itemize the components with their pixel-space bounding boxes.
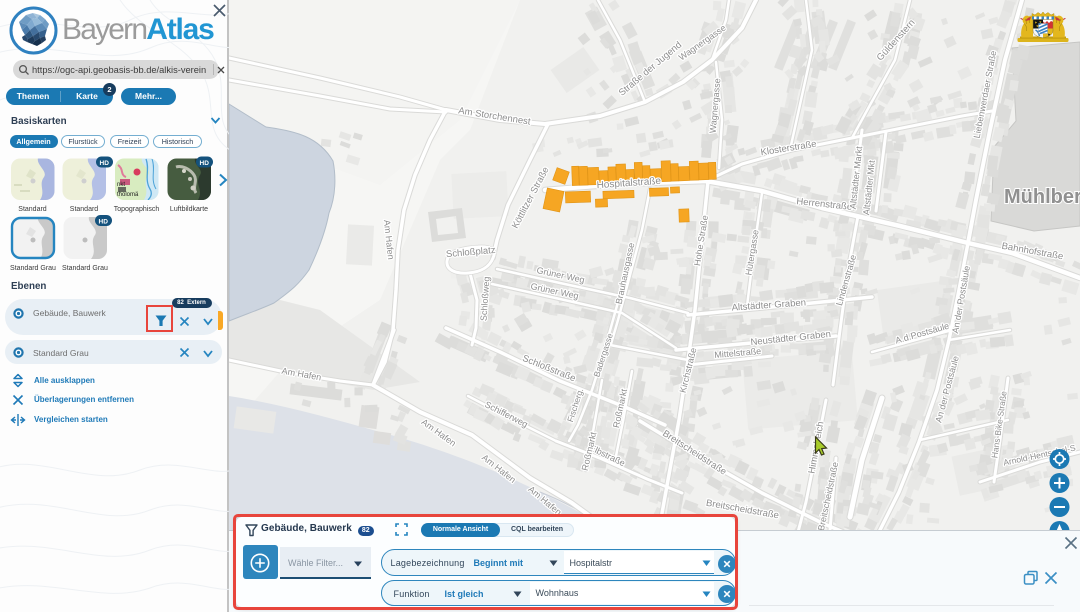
svg-text:Luftbildkarte: Luftbildkarte: [170, 206, 208, 213]
svg-text:HD: HD: [99, 219, 109, 226]
svg-text:tholomä: tholomä: [117, 192, 139, 198]
svg-text:HD: HD: [200, 160, 210, 167]
svg-text:nkt: nkt: [117, 182, 125, 188]
svg-text:Standard Grau: Standard Grau: [62, 265, 108, 272]
svg-text:Mühlberg: Mühlberg: [1004, 186, 1080, 208]
svg-text:Topographisch: Topographisch: [114, 206, 160, 213]
svg-text:HD: HD: [100, 160, 110, 167]
svg-text:Standard: Standard: [18, 206, 47, 213]
svg-text:Standard Grau: Standard Grau: [10, 265, 56, 272]
svg-text:Standard: Standard: [70, 206, 99, 213]
